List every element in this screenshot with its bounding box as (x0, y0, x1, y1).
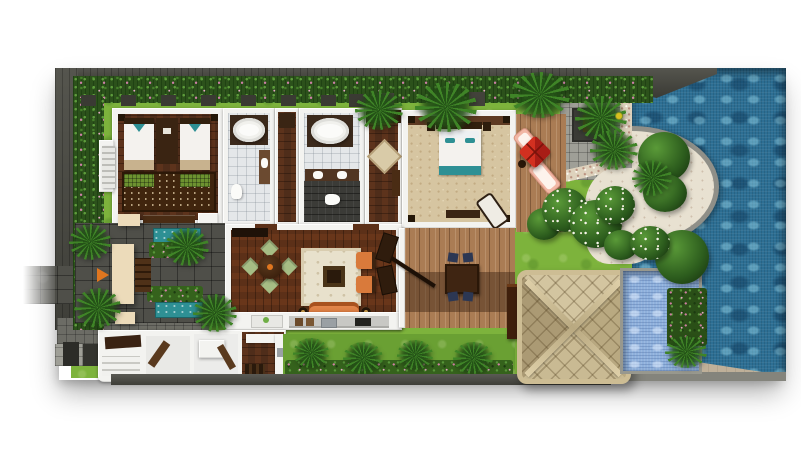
plunge-bush-2 (630, 226, 670, 260)
planter-box-3 (161, 95, 176, 106)
toilet-1 (231, 184, 242, 199)
palm-courtyard-2 (75, 288, 121, 328)
south-palm-2 (343, 342, 383, 374)
twin-bed-2-footband (180, 160, 210, 170)
planter-box-7 (321, 95, 336, 106)
planter-box-1 (81, 95, 96, 106)
toilet-2 (325, 194, 340, 205)
outdoor-chair-4 (463, 292, 474, 302)
south-palm-1 (293, 338, 329, 368)
corridor-wardrobe (279, 113, 295, 128)
palm-top-3 (510, 72, 570, 118)
king-foot-runner (439, 166, 481, 175)
rug-green-mat-2 (180, 174, 210, 187)
outdoor-chair-3 (447, 291, 458, 301)
bedroom-post-2 (211, 114, 218, 121)
planter-box-left-2 (83, 344, 99, 366)
sink-2b (337, 171, 347, 179)
credenza (232, 228, 268, 237)
palm-spa (590, 130, 638, 170)
coffee-table (323, 266, 345, 287)
planter-box-2 (121, 95, 136, 106)
canopy-tab-top (118, 214, 140, 226)
cutting-board-2 (306, 318, 314, 326)
outdoor-chair-2 (463, 253, 474, 263)
outdoor-table (445, 264, 479, 294)
palm-top-1 (355, 90, 403, 130)
beds-runner (156, 118, 178, 164)
plan-area (55, 68, 786, 385)
king-pillow-teal-1 (445, 138, 455, 143)
twin-bed-2-headboard (180, 118, 210, 124)
table-centerpiece (267, 264, 273, 270)
palm-courtyard-3 (165, 228, 209, 266)
store-bench (105, 335, 142, 349)
planter-box-4 (201, 95, 216, 106)
villa-floor-plan (0, 0, 801, 451)
bathtub-2 (311, 118, 349, 144)
flower-shrub-3 (595, 186, 635, 224)
king-pillow-teal-2 (465, 138, 475, 143)
console-plant (263, 317, 269, 323)
corridor-floor (278, 112, 296, 222)
palm-courtyard-4 (193, 294, 237, 332)
lounger-side-table (518, 160, 526, 168)
sink-2a (313, 171, 323, 179)
twin-bed-1-footband (124, 160, 154, 170)
south-palm-3 (397, 340, 433, 370)
planter-box-5 (241, 95, 256, 106)
king-pillows (441, 131, 479, 138)
planter-box-left-1 (63, 342, 79, 366)
master-post-2 (503, 116, 510, 123)
dressing-console (392, 170, 400, 196)
hob (355, 318, 371, 326)
master-post-3 (408, 215, 415, 222)
armchair-1 (356, 252, 376, 269)
twin-bed-1-headboard (124, 118, 154, 124)
sink-1 (261, 158, 268, 168)
planter-box-6 (281, 95, 296, 106)
bulge-palm (632, 160, 672, 196)
flower-bed-2 (147, 286, 203, 302)
master-post-1 (408, 116, 415, 123)
service-steps (102, 356, 140, 376)
yellow-potted-plant (615, 112, 623, 120)
bathtub-1 (233, 118, 265, 142)
courtyard-steps (135, 258, 151, 292)
nightstand-right (483, 122, 491, 131)
palm-top-2 (415, 82, 477, 132)
outdoor-chair-1 (447, 252, 458, 262)
green-wall-palm (665, 336, 707, 368)
cutting-board-1 (295, 318, 303, 326)
gazebo-roof (517, 270, 631, 384)
palm-courtyard-1 (69, 224, 111, 260)
rug-green-mat-1 (124, 174, 154, 187)
master-bench (446, 210, 480, 218)
kitchen-counter (289, 316, 389, 328)
south-palm-4 (453, 342, 493, 374)
door-gap-2 (353, 224, 379, 230)
pantry-counter-top (246, 334, 278, 343)
armchair-2 (356, 276, 376, 293)
daybed-bench (102, 146, 115, 188)
kitchen-sink (321, 318, 337, 328)
nightstand-item (163, 128, 171, 134)
